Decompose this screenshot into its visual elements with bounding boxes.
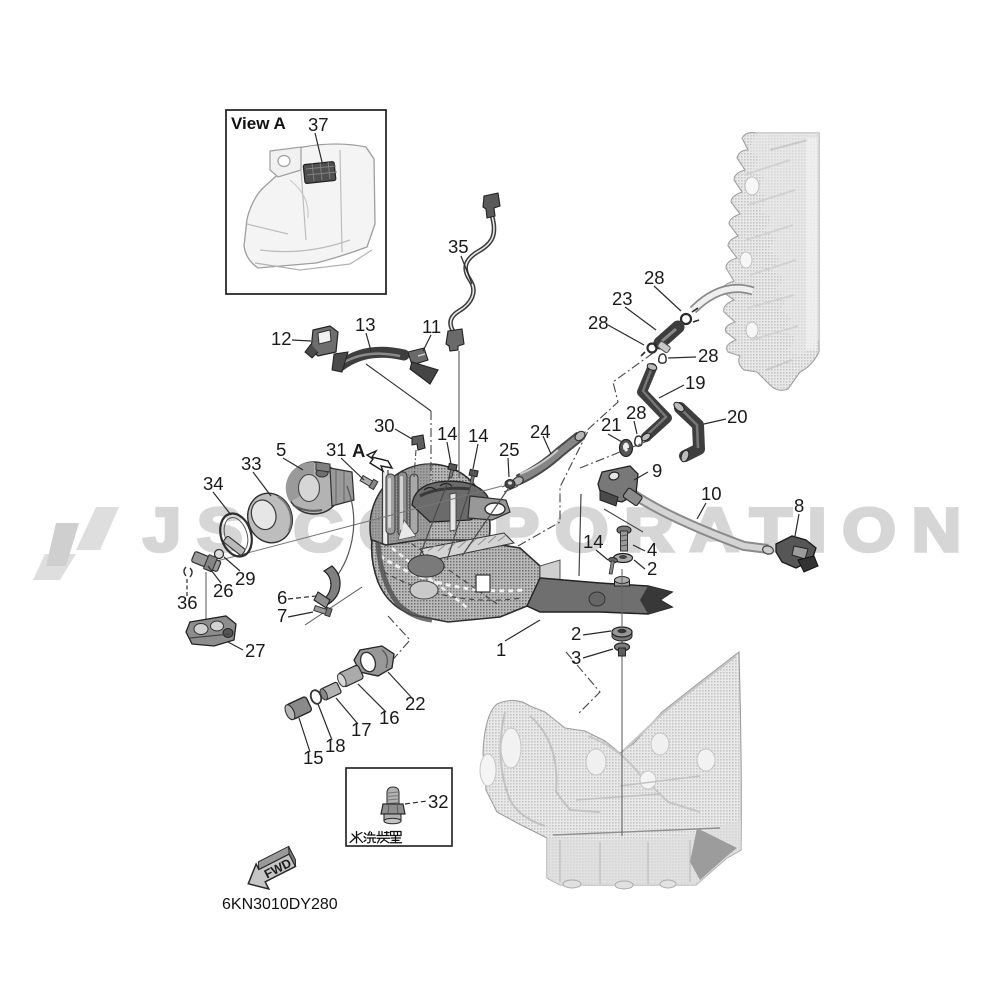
svg-text:23: 23: [612, 288, 633, 309]
svg-text:20: 20: [727, 406, 748, 427]
svg-text:8: 8: [794, 495, 804, 516]
svg-text:2: 2: [571, 623, 581, 644]
svg-text:19: 19: [685, 372, 706, 393]
svg-text:6KN3010DY280: 6KN3010DY280: [222, 896, 338, 913]
svg-text:21: 21: [601, 414, 622, 435]
svg-text:28: 28: [588, 312, 609, 333]
svg-text:37: 37: [308, 114, 329, 135]
svg-text:30: 30: [374, 415, 395, 436]
svg-text:14: 14: [437, 423, 458, 444]
svg-text:16: 16: [379, 707, 400, 728]
svg-text:1: 1: [496, 639, 506, 660]
svg-text:35: 35: [448, 236, 469, 257]
svg-text:28: 28: [644, 267, 665, 288]
svg-text:9: 9: [652, 460, 662, 481]
svg-text:11: 11: [422, 316, 441, 337]
svg-text:2: 2: [647, 558, 657, 579]
svg-text:29: 29: [235, 568, 256, 589]
svg-text:10: 10: [701, 483, 722, 504]
svg-text:5: 5: [276, 439, 286, 460]
svg-text:24: 24: [530, 421, 551, 442]
svg-text:17: 17: [351, 719, 372, 740]
svg-text:33: 33: [241, 453, 262, 474]
svg-text:7: 7: [277, 605, 287, 626]
svg-text:14: 14: [583, 531, 604, 552]
svg-text:A: A: [352, 440, 365, 461]
svg-text:31: 31: [326, 439, 347, 460]
svg-text:12: 12: [271, 328, 292, 349]
svg-text:18: 18: [325, 735, 346, 756]
svg-text:14: 14: [468, 425, 489, 446]
svg-text:22: 22: [405, 693, 426, 714]
svg-text:13: 13: [355, 314, 376, 335]
svg-text:32: 32: [428, 791, 449, 812]
svg-text:25: 25: [499, 439, 520, 460]
svg-text:26: 26: [213, 580, 234, 601]
svg-text:View A: View A: [231, 114, 286, 133]
svg-text:4: 4: [647, 539, 657, 560]
svg-text:34: 34: [203, 473, 224, 494]
svg-text:15: 15: [303, 747, 324, 768]
svg-text:28: 28: [698, 345, 719, 366]
svg-text:3: 3: [571, 647, 581, 668]
svg-text:28: 28: [626, 402, 647, 423]
svg-text:27: 27: [245, 640, 266, 661]
